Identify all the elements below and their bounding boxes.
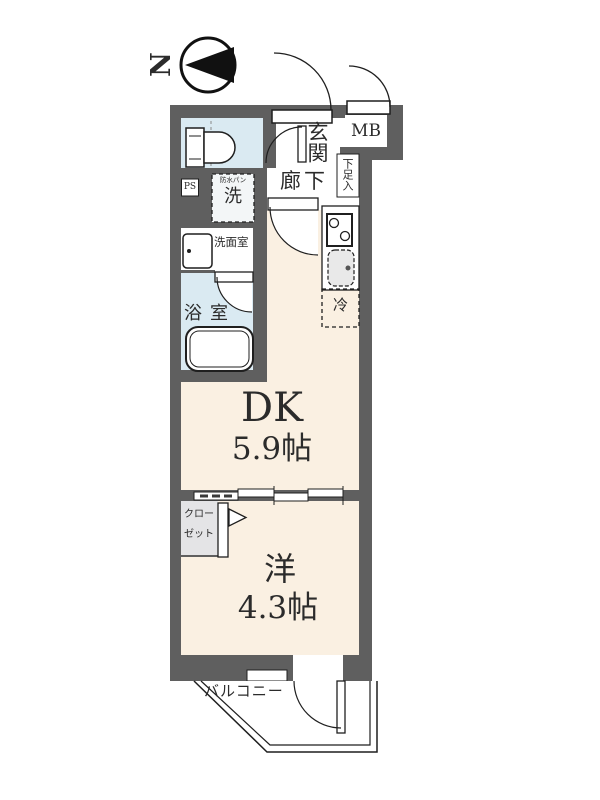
closet-label-line1: クロー: [182, 510, 216, 520]
bathtub-icon: [186, 327, 253, 371]
dk-size: 5.9帖: [212, 434, 332, 465]
mb-door-panel: [347, 101, 390, 114]
north-arrow-icon: [181, 38, 235, 92]
shoe-cabinet-label: 下足入: [342, 158, 353, 191]
hallway-label: 廊下: [280, 171, 328, 192]
toilet-bowl-icon: [204, 132, 235, 163]
toilet-tank: [186, 128, 204, 167]
wall-bottom-right: [343, 655, 372, 681]
western-room-size: 4.3帖: [218, 593, 338, 624]
north-label: N: [148, 52, 175, 77]
balcony-label: バルコニー: [204, 684, 284, 699]
balcony-door-opening: [293, 655, 343, 681]
bathroom-door-panel: [215, 272, 253, 282]
laundry-label: 洗: [212, 188, 254, 206]
western-room-label: 洋: [230, 553, 330, 585]
stove-icon: [327, 214, 352, 246]
window-inset: [247, 670, 287, 681]
washroom-label: 洗面室: [214, 237, 249, 249]
laundry-note: 防水パン: [212, 177, 254, 184]
dk-door-panel: [268, 198, 318, 210]
washroom-sink-icon: [183, 234, 212, 268]
bathroom-label: 浴室: [184, 305, 236, 323]
pipe-shaft-label: PS: [181, 183, 199, 192]
meter-box-label: MB: [345, 123, 387, 140]
closet-door-panel: [218, 503, 228, 557]
floor-plan: N 玄関 MB 廊下 下足入 PS 防水パン 洗 洗面室 浴室 冷 DK 5.9…: [0, 0, 600, 800]
closet-label-line2: ゼット: [182, 530, 216, 540]
entrance-label: 玄関: [306, 121, 327, 163]
refrigerator-label: 冷: [322, 298, 359, 313]
kitchen-sink-icon: [328, 250, 354, 286]
entrance-door-arc: [274, 53, 331, 110]
wall-left: [170, 105, 181, 681]
wall-washroom-bath: [181, 270, 215, 273]
balcony-door-panel: [337, 681, 345, 733]
wall-right: [359, 160, 372, 672]
dk-label: DK: [226, 388, 318, 428]
wall-washroom-dk: [253, 168, 267, 381]
